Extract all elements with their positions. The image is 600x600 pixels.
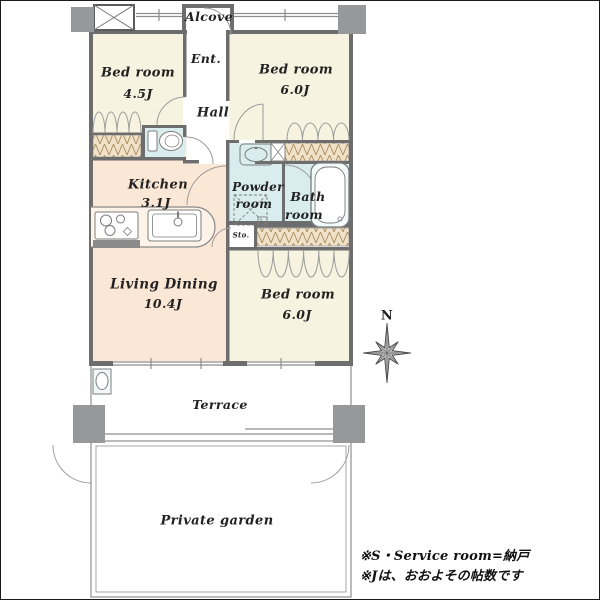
label-hall: Hall <box>197 107 229 120</box>
closet-bedroom-top-left <box>93 135 141 157</box>
pillar <box>71 7 94 32</box>
washing-pan-icon <box>93 369 111 394</box>
stove-icon <box>93 212 140 248</box>
label-bedroom-top-left: Bed room <box>101 67 175 80</box>
label-powder-room: Powder <box>232 181 284 193</box>
label-living-dining-size: 10.4J <box>144 298 182 311</box>
label-bedroom-top-right-size: 6.0J <box>280 84 309 97</box>
floor-plan: Alcove Ent. Hall Bed room 4.5J Bed room … <box>0 0 600 600</box>
closet-bedroom-mid-right <box>257 228 349 246</box>
toilet-icon <box>148 131 183 151</box>
label-bedroom-top-right: Bed room <box>259 64 333 77</box>
label-storage: Sto. <box>233 232 250 239</box>
label-kitchen: Kitchen <box>128 179 188 192</box>
label-compass-north: N <box>381 310 393 323</box>
kitchen-sink-icon <box>148 210 201 241</box>
footnote-jou-count: ※Jは、おおよその帖数です <box>360 565 523 584</box>
label-terrace: Terrace <box>192 399 247 412</box>
garden-gate-arc <box>53 445 91 483</box>
pillar <box>73 405 105 443</box>
pipe-space-icon <box>271 143 285 161</box>
bedroom-mid-right-floor <box>230 250 350 361</box>
label-bedroom-mid-right: Bed room <box>261 289 335 302</box>
pillar <box>333 405 365 443</box>
compass-icon <box>363 323 411 383</box>
label-bedroom-top-left-size: 4.5J <box>123 88 152 101</box>
label-private-garden: Private garden <box>160 515 273 528</box>
garden-gate-arc <box>311 445 349 483</box>
window <box>234 9 338 21</box>
window <box>136 9 182 21</box>
footnote-service-room: ※S・Service room=納戸 <box>360 545 529 564</box>
label-alcove: Alcove <box>185 11 233 24</box>
label-bath-room: Bath <box>290 191 325 204</box>
label-kitchen-size: 3.1J <box>141 197 170 210</box>
label-bedroom-mid-right-size: 6.0J <box>282 309 311 322</box>
pillar <box>338 5 366 34</box>
label-living-dining: Living Dining <box>110 278 218 292</box>
label-entrance: Ent. <box>191 53 221 66</box>
label-powder-room-2: room <box>236 198 273 210</box>
elevator-shaft-icon <box>94 5 134 30</box>
closet-bedroom-top-right <box>285 143 349 161</box>
label-bath-room-2: room <box>285 209 323 222</box>
